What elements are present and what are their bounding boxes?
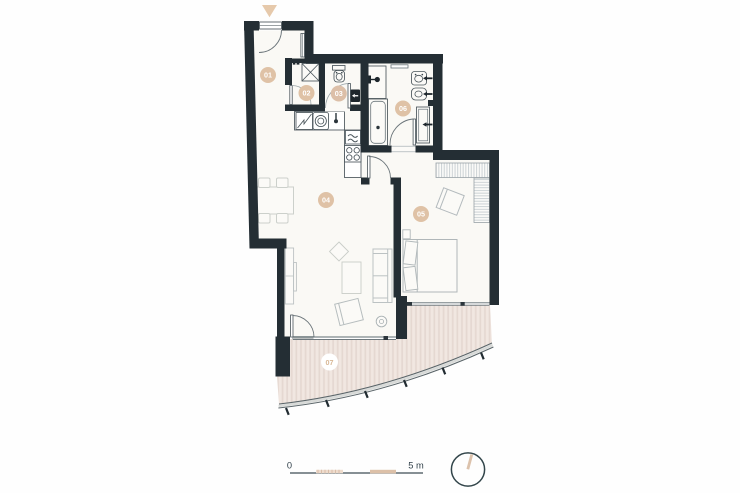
svg-text:06: 06 — [399, 104, 407, 113]
svg-text:0: 0 — [287, 461, 292, 471]
svg-text:04: 04 — [322, 196, 330, 205]
svg-text:5 m: 5 m — [408, 461, 424, 471]
svg-text:02: 02 — [303, 89, 311, 98]
svg-text:05: 05 — [417, 210, 425, 219]
svg-text:03: 03 — [335, 89, 343, 98]
svg-text:07: 07 — [326, 358, 334, 367]
svg-text:01: 01 — [264, 71, 272, 80]
